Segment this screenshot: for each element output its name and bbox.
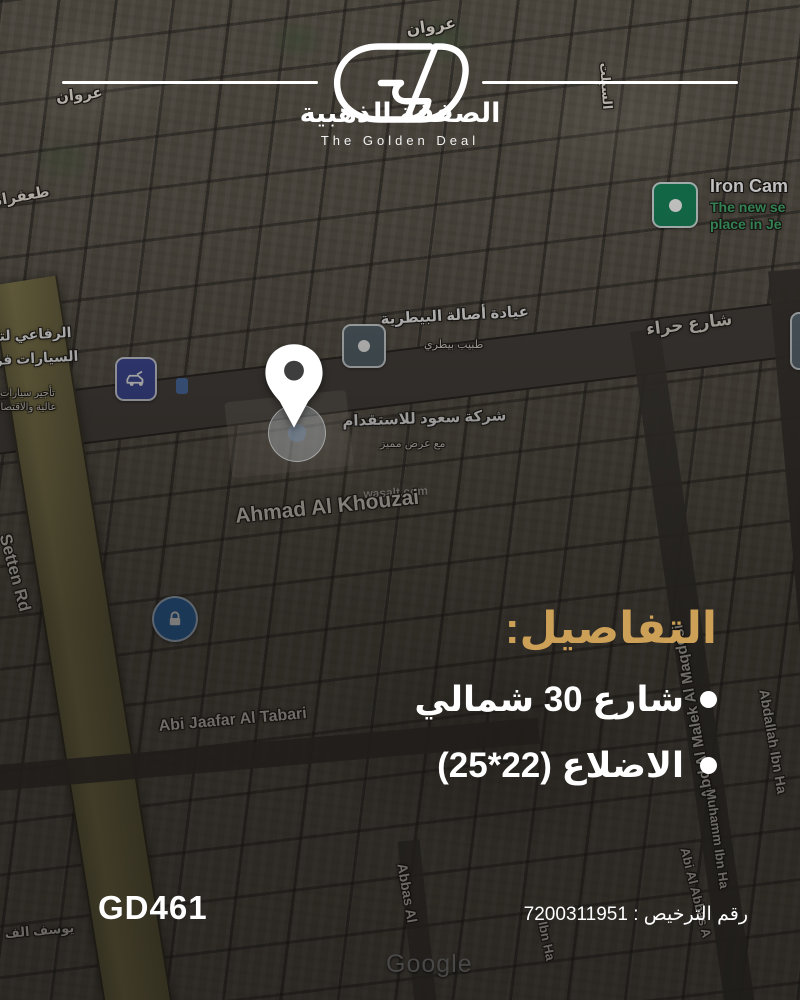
listing-code: GD461 xyxy=(98,889,208,927)
header-line-left xyxy=(62,81,318,84)
brand-title-arabic: الصفقة الذهبية xyxy=(0,98,800,129)
detail-text: شارع 30 شمالي xyxy=(414,679,684,721)
bullet-dot xyxy=(700,691,717,708)
detail-item-dimensions: الاضلاع (22*25) xyxy=(414,745,717,787)
location-pin-icon xyxy=(263,342,325,430)
details-title: التفاصيل: xyxy=(414,604,717,655)
brand-title-english: The Golden Deal xyxy=(0,133,800,148)
detail-item-street: شارع 30 شمالي xyxy=(414,679,717,721)
real-estate-flyer: عروان عروان طعفرانه السبلت Iron Cam The … xyxy=(0,0,800,1000)
dark-gradient-overlay xyxy=(0,0,800,1000)
details-section: التفاصيل: شارع 30 شمالي الاضلاع (22*25) xyxy=(414,604,717,787)
detail-text: الاضلاع (22*25) xyxy=(437,745,684,787)
bullet-dot xyxy=(700,757,717,774)
license-number: رقم الترخيص : 7200311951 xyxy=(524,903,748,926)
header-line-right xyxy=(482,81,738,84)
